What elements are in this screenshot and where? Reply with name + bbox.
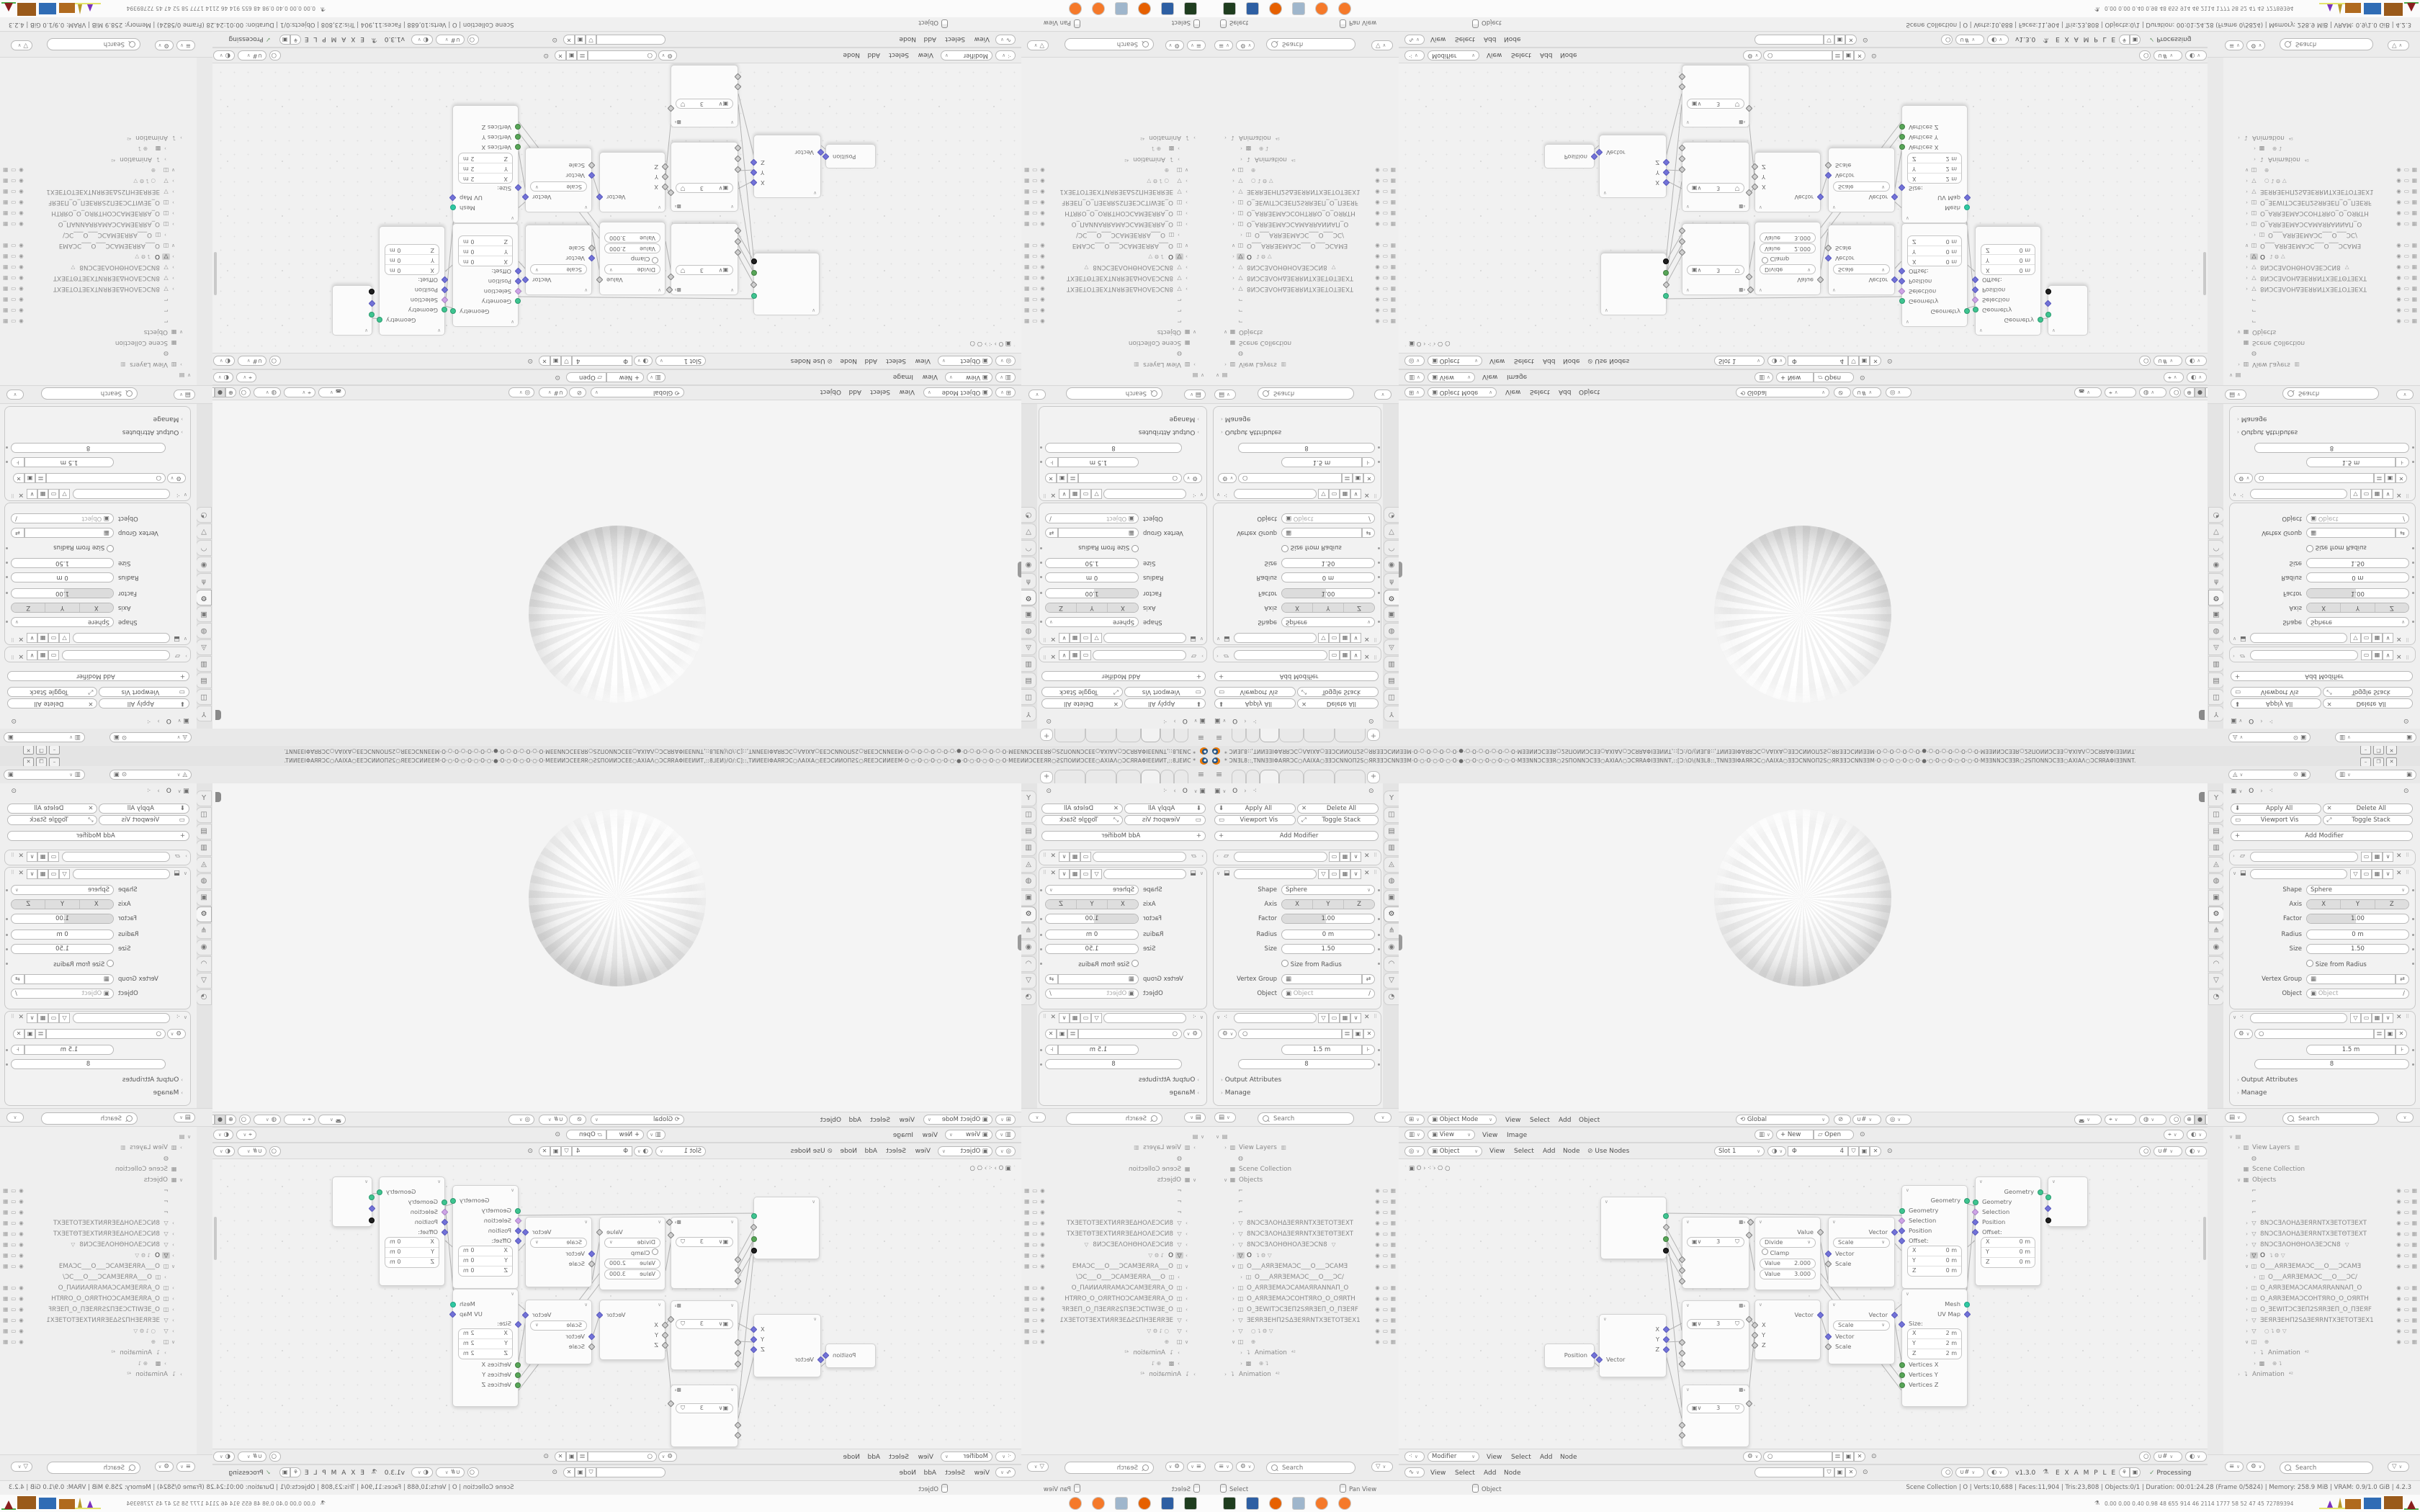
outliner-row[interactable]: › ▥ View Layers ▥ ◉▭▦ [0,1142,192,1153]
add-workspace-button[interactable]: + [1367,771,1380,783]
pin-icon[interactable]: ⊙ [552,36,557,43]
viewport-disable-toggle[interactable]: ▭ [11,178,16,184]
overlays-dropdown[interactable]: ⌖∨ [284,1115,315,1125]
size-xyz-fields[interactable]: X2 m Y2 m Z2 m [1907,1328,1962,1359]
node-group-b[interactable]: ∨▩₃ ▣∨3⛉ [671,142,738,212]
viewport-disable-toggle[interactable]: ▭ [11,1220,16,1226]
outliner-row[interactable]: ⌐ ◉▭▦ [1021,305,1206,316]
node-group-c[interactable]: ∨▩₃ ▣∨3⛉ [671,65,738,127]
integer-output-socket[interactable] [751,270,757,276]
vertex-group-field[interactable]: ▦ [1281,974,1362,984]
string-input-socket[interactable] [2045,1218,2051,1223]
modifier-1-name-field[interactable] [1093,852,1186,862]
minimize-button[interactable]: – [2360,745,2371,755]
modifier-1-render-toggle[interactable]: ▦ [1340,650,1350,660]
nodegroup-browse-button[interactable]: ⚙∨ [658,50,677,60]
modifier-1-name-field[interactable] [1234,650,1327,660]
modifier-1-render-toggle[interactable]: ▦ [1340,852,1350,862]
geonodes-realtime-toggle[interactable]: ▭ [1329,1013,1340,1023]
viewport-disable-toggle[interactable]: ▭ [1383,1198,1388,1205]
combine-xyz-node[interactable]: ∨ Vector X Y Z [1754,152,1821,212]
geonodes-socket1-field[interactable]: 1.5 m [1058,1045,1139,1055]
nodetree-unlink-button[interactable]: ✕ [1363,473,1375,483]
material-slot-dropdown[interactable]: Slot 1∨ [655,1146,706,1156]
select-menu[interactable]: Select [1514,1143,1534,1159]
material-browse-button[interactable]: ◑∨ [1767,356,1786,366]
material-unlink-button[interactable]: ✕ [539,1146,550,1156]
outliner-row[interactable]: › ▽ ƎEЯRƎEHΠ2SΔƎEЯRNTXƎETOTƎEX1 ◉▭▦ [0,1315,192,1326]
drag-handle-icon[interactable]: ⠿ [1043,654,1047,660]
xray-toggle[interactable]: ◍∨ [2139,1115,2166,1125]
nodegroup-fakeuser-button[interactable]: 𝄙 [577,50,588,60]
image-open-button[interactable]: ▱ Open [566,1130,606,1140]
add-menu[interactable]: Add [849,384,861,400]
render-disable-toggle[interactable]: ▦ [2412,1209,2417,1215]
viewport-disable-toggle[interactable]: ▭ [11,275,16,282]
outliner-row[interactable]: › ▽ ○ ⮧ ⚙ ▽ ◉▭▦ [2228,1326,2420,1336]
terminal-icon[interactable] [1223,1497,1236,1510]
display-mode-dropdown[interactable]: ▤∨ [174,1112,195,1122]
outliner-row[interactable]: ∨ ◫ O___AЯRƎEMAƆC___O___ƆCAMƎ ◉▭▦ [2228,240,2420,251]
vertices-y-input-socket[interactable] [1899,1372,1905,1378]
radius-field[interactable]: 0 m [2306,572,2409,582]
viewport-3d[interactable] [1399,783,2208,1112]
view-layer-selector[interactable]: ▥∨ ▣ [4,770,85,780]
cast-realtime-toggle[interactable]: ▭ [1080,633,1091,643]
pin-icon[interactable]: ⊙ [552,1469,557,1476]
shield-icon[interactable]: ⛉ [681,1238,685,1246]
offset-xyz-fields[interactable]: X0 m Y0 m Z0 m [458,235,513,266]
drag-handle-icon[interactable]: ⠿ [1373,852,1377,858]
node2-editor-type-button[interactable]: ∿∨ [1404,35,1425,45]
size-xyz-fields[interactable]: X2 m Y2 m Z2 m [458,1328,513,1359]
outliner-row[interactable]: ∨ ▤ ◉▭▦ [1214,1131,1399,1142]
position-input-node[interactable]: Position [825,1344,876,1368]
vector-math-scale-node-2[interactable]: ∨ Vector Scale∨ Vector Scale [525,1300,592,1364]
outliner-search-right[interactable] [41,1112,138,1125]
outliner-row[interactable]: › ⮧ Animation ⁴² ◉▭▦ [0,132,192,143]
hide-eye-toggle[interactable]: ◉ [1375,1187,1380,1194]
manage-section[interactable]: › Manage [1221,415,1250,423]
world-tab[interactable]: ◍ [2208,873,2224,889]
display-mode-dropdown[interactable]: ▤∨ [1184,390,1206,400]
render-disable-toggle[interactable]: ▦ [2412,1306,2417,1313]
modifiers-tab[interactable]: ⚙ [196,590,212,606]
vertices-z-input-socket[interactable] [1899,1382,1905,1388]
combine-xyz-node[interactable]: ∨ Vector X Y Z [599,152,665,212]
nodegroup-browse-button[interactable]: ⚙∨ [658,1452,677,1462]
workspace-tab-5[interactable] [1304,728,1335,742]
vertex-group-field[interactable]: ▦ [24,974,114,984]
render-disable-toggle[interactable]: ▦ [1024,1263,1029,1269]
cast-dropdown[interactable]: ∨ [1059,633,1070,643]
render-disable-toggle[interactable]: ▦ [1391,253,1396,260]
outliner-row[interactable]: ∨ ▦ Objects ◉▭▦ [0,1174,192,1185]
hide-eye-toggle[interactable]: ◉ [1375,1209,1380,1215]
transform-orientation-dropdown[interactable]: ⟲ Global∨ [1736,387,1829,397]
hide-eye-toggle[interactable]: ◉ [1040,307,1045,314]
hide-eye-toggle[interactable]: ◉ [1040,167,1045,174]
render-disable-toggle[interactable]: ▦ [1391,1295,1396,1302]
outliner-row[interactable]: ◍ ◉▭▦ [1021,1153,1206,1164]
outliner-row[interactable]: › ⮧ Animation ⁴² ◉▭▦ [1021,154,1206,165]
outliner-row[interactable]: › ◫ O_AЯRƎEMAƆCAMAЯRANNAΠ_O ◉▭▦ [0,219,192,230]
render-disable-toggle[interactable]: ▦ [2412,1328,2417,1334]
render-disable-toggle[interactable]: ▦ [3,318,8,325]
set-position-node-1[interactable]: ∨ Geometry Geometry Selection Position O… [1901,1185,1968,1289]
group-datablock-field[interactable]: ▣∨3⛉ [1687,1237,1744,1247]
particles-tab[interactable]: ◉ [2208,940,2224,955]
outliner-row[interactable]: ∨ ◫ O___AЯRƎEMAƆC___O___ƆCAMƎ ◉▭▦ [1021,1261,1206,1272]
toggle-stack-button[interactable]: ⤢ Toggle Stack [2323,815,2414,825]
outliner-search-bottom[interactable] [2280,38,2373,50]
viewport-disable-toggle[interactable]: ▭ [1032,243,1037,249]
modifiers-tab[interactable]: ⚙ [1021,906,1036,922]
group-datablock-field[interactable]: ▣∨3⛉ [1687,183,1744,193]
delete-all-button[interactable]: ✕ Delete All [1297,698,1379,708]
pin-icon[interactable]: ⊙ [555,374,560,381]
cube-node[interactable]: ∨ Mesh UV Map Size: X2 m Y2 m Z2 m Verti… [1901,1289,1968,1407]
nodegroup-copy-button[interactable]: ▣ [566,1452,577,1462]
cast-render-toggle[interactable]: ▦ [1340,633,1350,643]
render-disable-toggle[interactable]: ▦ [2412,199,2417,206]
outliner-row[interactable]: ⌐ ◉▭▦ [1214,1196,1399,1207]
node-group-a[interactable]: ∨▩₃ ▣∨3⛉ [671,1217,738,1289]
vector-math-scale-node-1[interactable]: ∨ Vector Scale∨ Vector Scale [1828,1217,1895,1287]
position-input-node[interactable]: Position [1544,1344,1595,1368]
outliner-row[interactable]: ⌐ ◉▭▦ [2228,294,2420,305]
image-new-button[interactable]: + New [1776,1130,1814,1140]
shield-icon[interactable]: ⛉ [1735,266,1739,274]
cast-render-toggle[interactable]: ▦ [1070,869,1080,879]
modifiers-tab[interactable]: ⚙ [1021,590,1036,606]
render-disable-toggle[interactable]: ▦ [3,1198,8,1205]
group-input-node[interactable]: ∨ [753,1197,820,1259]
outliner-row[interactable]: › ◫ O_AЯRƎEMAƆCOHTЯRO_O_OЯRTH ◉▭▦ [0,1293,192,1304]
viewport-disable-toggle[interactable]: ▭ [2404,307,2409,314]
render-disable-toggle[interactable]: ▦ [1391,1241,1396,1248]
physics-tab[interactable]: ◠ [1384,540,1399,556]
funnel-filter-dropdown[interactable]: ▽∨ [1371,40,1393,50]
add-modifier-button[interactable]: +Add Modifier [1214,671,1379,681]
shader-snap-dropdown[interactable]: ∪#∨ [2154,356,2182,366]
geonodes-render-toggle[interactable]: ▦ [1070,1013,1080,1023]
node-group-c[interactable]: ∨▩₃ ▣∨3⛉ [1682,65,1749,127]
tool-tab[interactable]: Y [2208,706,2224,721]
geonodes-socket1-field[interactable]: 1.5 m [2306,457,2396,467]
shading-wireframe-icon[interactable]: ⊕ [225,1115,236,1125]
physics-tab[interactable]: ◠ [196,540,212,556]
render-disable-toggle[interactable]: ▦ [1391,221,1396,228]
add-menu[interactable]: Add [1484,1465,1496,1481]
outliner-row[interactable]: › ▥ View Layers ▥ ◉▭▦ [1214,359,1399,370]
cast-editmode-toggle[interactable]: ▽ [1318,633,1329,643]
add-menu[interactable]: Add [1543,353,1555,369]
render-disable-toggle[interactable]: ▦ [3,1187,8,1194]
node2-fakeuser-button[interactable]: ⛉ [1824,1467,1834,1477]
node-menu[interactable]: Node [1560,47,1577,63]
render-disable-toggle[interactable]: ▦ [1391,1338,1396,1345]
add-modifier-button[interactable]: +Add Modifier [1041,831,1206,841]
viewport-disable-toggle[interactable]: ▭ [1032,221,1037,228]
hide-eye-toggle[interactable]: ◉ [1040,297,1045,303]
drag-handle-icon[interactable]: ⠿ [1373,636,1377,642]
geometry-node-editor[interactable]: ▣ O › ⁖ › ⎔ ○ [212,63,1021,353]
select-menu[interactable]: Select [1511,47,1531,63]
workspace-tab-1[interactable] [1174,770,1188,784]
proportional-edit-dropdown[interactable]: ◎∨ [508,1115,534,1125]
viewport-disable-toggle[interactable]: ▭ [1383,264,1388,271]
physics-tab[interactable]: ◠ [1384,956,1399,972]
outliner-row[interactable]: ◍ ◉▭▦ [1021,348,1206,359]
workspace-tab-5[interactable] [1304,770,1335,784]
show-gizmo-dropdown[interactable]: ◛∨ [318,387,346,397]
image-gizmos-dropdown[interactable]: ⌖∨ [2164,1130,2184,1140]
string-input-socket[interactable] [2045,289,2051,294]
outliner-row[interactable]: › ▽ 8NƆCƎΛOHΔƎEЯRNTXƎETΘTƎEXT ◉▭▦ [2228,273,2420,284]
pin-icon[interactable]: ⊙ [1046,788,1052,795]
outliner-search-left[interactable] [1066,387,1162,400]
outliner-row[interactable]: › ▽ 8NƆCƎΛOHΔƎEЯRNTXƎETΘTƎEXT ◉▭▦ [0,273,192,284]
node2-datablock-field[interactable] [1754,35,1824,45]
outliner-row[interactable]: ∨ ▤ ◉▭▦ [2228,1131,2420,1142]
add-menu[interactable]: Add [1540,1449,1552,1465]
node2-editor-type-button[interactable]: ∿∨ [995,35,1016,45]
outliner-row[interactable]: ⌐ ◉▭▦ [0,1196,192,1207]
render-disable-toggle[interactable]: ▦ [1024,167,1029,174]
render-disable-toggle[interactable]: ▦ [1024,1209,1029,1215]
image-editor-type-button[interactable]: ▥∨ [1404,1130,1425,1140]
transform-orientation-dropdown[interactable]: ⟲ Global∨ [591,1115,684,1125]
overlays-dropdown[interactable]: ◐∨ [411,35,433,45]
material-copy-button[interactable]: ▣ [1859,1146,1870,1156]
render-disable-toggle[interactable]: ▦ [2412,1263,2417,1269]
snap-toggle[interactable]: ○ [269,1452,281,1462]
drag-handle-icon[interactable]: ⠿ [1043,492,1047,498]
select-menu[interactable]: Select [945,1465,965,1481]
vertex-group-invert-button[interactable]: ⇄ [1362,528,1375,538]
outliner-row[interactable]: › ▽ O ⮧ ⚙ ▽ ◉▭▦ [1021,251,1206,262]
modifier-1-realtime-toggle[interactable]: ▭ [1329,852,1340,862]
hide-eye-toggle[interactable]: ◉ [19,1284,24,1291]
geonodes-realtime-toggle[interactable]: ▭ [1080,489,1091,499]
factor-slider[interactable]: 1.00 [1281,588,1375,598]
use-nodes-checkbox[interactable]: ⊘ Use Nodes [791,353,833,369]
outliner-row[interactable]: ∨ ◫ ⊕ ◉▭▦ [2228,1336,2420,1347]
geonodes-socket1-field[interactable]: 1.5 m [1281,457,1362,467]
object-field[interactable]: ▣ Object∕ [2306,513,2409,523]
particles-tab[interactable]: ◉ [1384,557,1399,572]
viewport-disable-toggle[interactable]: ▭ [1383,1295,1388,1302]
outliner-row[interactable]: ∨ ▤ ◉▭▦ [0,370,192,381]
render-disable-toggle[interactable]: ▦ [1024,1220,1029,1226]
modifier-1-name-field[interactable] [62,852,170,862]
display-mode-dropdown[interactable]: ▤∨ [1214,390,1236,400]
geometry-output-socket[interactable] [450,1198,456,1204]
scene-tab[interactable]: ◬ [196,639,212,655]
group-datablock-field[interactable]: ▣∨3⛉ [1687,1403,1744,1413]
radius-field[interactable]: 0 m [1045,930,1139,940]
viewport-disable-toggle[interactable]: ▭ [1032,1284,1037,1291]
size-from-radius-checkbox[interactable]: Size from Radius [53,960,114,968]
toggle-stack-button[interactable]: ⤢ Toggle Stack [1297,687,1379,697]
render-disable-toggle[interactable]: ▦ [1391,275,1396,282]
geonodes-dropdown[interactable]: ∨ [1059,1013,1070,1023]
viewport-disable-toggle[interactable]: ▭ [2404,1338,2409,1345]
vertex-group-invert-button[interactable]: ⇄ [1045,528,1058,538]
object-tab[interactable]: ▣ [2208,606,2224,622]
hide-eye-toggle[interactable]: ◉ [1375,1284,1380,1291]
tool-tab[interactable]: Y [2208,791,2224,806]
breadcrumb-object[interactable]: O [1232,788,1237,795]
outliner-row[interactable]: › ◫ O_ƎEWITƆCƎEΠ2SЯRƎEΠ_O_ΠƎEЯF ◉▭▦ [1021,197,1206,208]
axis-x-button[interactable]: X [1107,900,1138,909]
viewport-disable-toggle[interactable]: ▭ [1383,1338,1388,1345]
greebled-sphere-object[interactable] [529,526,706,703]
size-from-radius-checkbox[interactable]: Size from Radius [2306,544,2367,552]
data-tab[interactable]: ▽ [1021,973,1036,989]
vertices-x-input-socket[interactable] [515,1362,521,1368]
viewport-vis-button[interactable]: ▭ Viewport Vis [1124,815,1206,825]
node-group-c[interactable]: ∨▩₃ ▣∨3⛉ [671,1385,738,1447]
node2-fakeuser-button[interactable]: ⛉ [586,1467,596,1477]
modifier-1-delete-icon[interactable]: ✕ [1050,652,1056,660]
select-menu[interactable]: Select [889,47,909,63]
shader-snap-toggle[interactable]: ○ [2139,356,2151,366]
radius-field[interactable]: 0 m [11,572,114,582]
hide-eye-toggle[interactable]: ◉ [2396,178,2401,184]
render-disable-toggle[interactable]: ▦ [3,210,8,217]
hide-eye-toggle[interactable]: ◉ [1040,1241,1045,1248]
geonodes-editmode-toggle[interactable]: ▽ [1318,489,1329,499]
nodetree-browse-button[interactable]: ⚙∨ [2234,1029,2253,1039]
overlays-dropdown[interactable]: ◐∨ [213,50,235,60]
render-disable-toggle[interactable]: ▦ [1391,1306,1396,1313]
axis-z-button[interactable]: Z [1344,603,1374,612]
viewport-disable-toggle[interactable]: ▭ [1032,286,1037,292]
hide-eye-toggle[interactable]: ◉ [1375,307,1380,314]
constraints-tab[interactable]: ⋔ [2208,923,2224,939]
hide-eye-toggle[interactable]: ◉ [2396,297,2401,303]
view-menu[interactable]: View [900,1112,915,1128]
cast-delete-icon[interactable]: ✕ [1364,635,1370,642]
addon-button-1[interactable]: ⚘ [290,1467,301,1477]
pin-icon[interactable]: ⊙ [1860,374,1865,381]
group-datablock-field[interactable]: ▣∨3⛉ [676,1403,733,1413]
size-field[interactable]: 1.50 [1281,944,1375,954]
toolbar-toggle-tab[interactable] [1399,935,1402,950]
geonodes-name-field[interactable] [1103,489,1186,499]
image-overlays-dropdown[interactable]: ◐∨ [213,1130,233,1140]
render-disable-toggle[interactable]: ▦ [3,1338,8,1345]
hide-eye-toggle[interactable]: ◉ [1040,1295,1045,1302]
hide-eye-toggle[interactable]: ◉ [2396,1263,2401,1269]
outliner-row[interactable]: ∨ ▤ ◉▭▦ [0,1131,192,1142]
hide-eye-toggle[interactable]: ◉ [1375,221,1380,228]
modifier-entry-1[interactable]: › ▱ ▭ ▦ ∨ ✕ ⠿ [4,647,191,662]
add-menu[interactable]: Add [1540,47,1552,63]
material-unlink-button[interactable]: ✕ [1870,1146,1881,1156]
outliner-mode-icon[interactable]: ≡∨ [1214,1462,1233,1472]
pin-icon[interactable]: ⊙ [1887,357,1893,364]
render-disable-toggle[interactable]: ▦ [1391,1328,1396,1334]
viewport-disable-toggle[interactable]: ▭ [2404,275,2409,282]
string-output-socket[interactable] [751,1248,757,1254]
snap-dropdown[interactable]: ∪#∨ [238,1452,266,1462]
cast-name-field[interactable] [1103,633,1186,643]
geonodes-name-field[interactable] [73,1013,170,1023]
add-menu[interactable]: Add [1559,1112,1571,1128]
outliner-row[interactable]: › ▽ 8NƆCƎΛOHΔƎEЯRNTXƎETΘTƎEXT ◉▭▦ [1214,273,1399,284]
geometry-input-socket[interactable] [442,307,447,312]
drag-handle-icon[interactable]: ⠿ [1043,870,1047,876]
outliner-search-right[interactable] [2282,1112,2379,1125]
viewport-vis-button[interactable]: ▭ Viewport Vis [1214,815,1296,825]
node2-fakeuser-button[interactable]: ⛉ [586,35,596,45]
world-tab[interactable]: ◍ [1384,623,1399,639]
calculator-icon[interactable] [1292,2,1305,15]
shading-wire-toggle[interactable]: ○ [239,1115,251,1125]
viewport-disable-toggle[interactable]: ▭ [2404,221,2409,228]
size-from-radius-checkbox[interactable]: Size from Radius [1078,960,1139,968]
display-mode-dropdown[interactable]: ▤∨ [1214,1112,1236,1122]
snap-toggle[interactable]: ⊘ [569,387,586,397]
object-tab[interactable]: ▣ [1384,890,1399,906]
hide-eye-toggle[interactable]: ◉ [19,1252,24,1259]
outliner-row[interactable]: ⌐ ◉▭▦ [2228,1196,2420,1207]
hide-eye-toggle[interactable]: ◉ [1040,264,1045,271]
outliner-row[interactable]: › ◫ O_AЯRƎEMAƆCOHTЯRO_O_OЯRTH ◉▭▦ [1021,208,1206,219]
delete-all-button[interactable]: ✕ Delete All [7,698,98,708]
outliner-row[interactable]: ∨ ▤ ◉▭▦ [2228,370,2420,381]
nodetree-unlink-button[interactable]: ✕ [1363,1029,1375,1039]
pin-icon[interactable]: ⊙ [555,1131,560,1138]
vector-math-scale-node-2[interactable]: ∨ Vector Scale∨ Vector Scale [1828,148,1895,212]
outliner-row[interactable]: › ◫ O___AЯRƎEMAƆC___O___ƆC/ ◉▭▦ [1021,230,1206,240]
viewport-disable-toggle[interactable]: ▭ [2404,264,2409,271]
outliner-row[interactable]: › ◫ O___AЯRƎEMAƆC___O___ƆC/ ◉▭▦ [0,230,192,240]
geonodes-dropdown[interactable]: ∨ [1350,489,1361,499]
particles-tab[interactable]: ◉ [196,557,212,572]
axis-y-button[interactable]: Y [1313,900,1344,909]
outliner-row[interactable]: ▦ Scene Collection ◉▭▦ [1021,1164,1206,1174]
blender-icon[interactable] [1092,1497,1105,1510]
render-disable-toggle[interactable]: ▦ [1391,178,1396,184]
view-menu[interactable]: View [915,1143,931,1159]
render-disable-toggle[interactable]: ▦ [2412,318,2417,325]
viewport-disable-toggle[interactable]: ▭ [1383,1284,1388,1291]
show-gizmo-dropdown[interactable]: ◛∨ [2074,1115,2102,1125]
render-disable-toggle[interactable]: ▦ [1391,1317,1396,1323]
world-tab[interactable]: ◍ [1384,873,1399,889]
render-disable-toggle[interactable]: ▦ [1024,1252,1029,1259]
modifiers-tab[interactable]: ⚙ [1384,906,1399,922]
menu-hamburger-icon[interactable]: ≡ [1193,770,1204,779]
render-disable-toggle[interactable]: ▦ [3,1306,8,1313]
modifier-1-name-field[interactable] [62,650,170,660]
size-field[interactable]: 1.50 [2306,558,2409,568]
workspace-tab-2[interactable] [1160,770,1174,784]
cast-name-field[interactable] [2250,633,2347,643]
nodegroup-copy-button[interactable]: ▣ [1843,1452,1854,1462]
value1-field[interactable]: Value2.000 [604,1259,660,1269]
render-tab[interactable]: ◫ [1384,807,1399,823]
nodetree-browse-button[interactable]: ⚙∨ [167,473,186,483]
material-tab[interactable]: ◔ [196,989,212,1005]
outliner-mode-icon[interactable]: ≡∨ [2225,1462,2244,1472]
proportional-edit-dropdown[interactable]: ◎∨ [508,387,534,397]
delete-all-button[interactable]: ✕ Delete All [1297,804,1379,814]
